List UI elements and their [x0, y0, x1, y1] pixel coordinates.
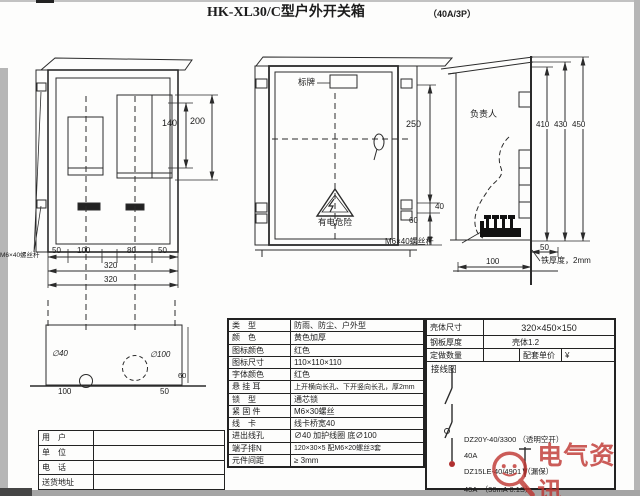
watermark-text: 电气资讯: [537, 436, 640, 496]
order-price-label: 配套单价: [520, 349, 562, 361]
person-label: 负责人: [470, 110, 497, 119]
drawing-sheet: HK-XL30/C型户外开关箱 （40A/3P）: [0, 0, 640, 496]
page-title: HK-XL30/C型户外开关箱: [207, 6, 365, 20]
spec-label: 类 型: [229, 320, 291, 331]
table-row: 壳体尺寸 320×450×150: [427, 320, 614, 336]
edge-right: [634, 0, 640, 496]
edge-bottom-left-mark: [0, 488, 32, 496]
spec-value: 110×110×110: [291, 357, 423, 368]
table-row: 进出线孔∅40 加护线圈 底∅100: [229, 430, 423, 442]
hole-large-label: ∅100: [150, 351, 170, 359]
front-bolt-callout: M6×40螺丝杆: [0, 253, 40, 260]
dim-250: 250: [406, 120, 421, 129]
top-left-mark: [36, 0, 54, 3]
spec-label: 线 卡: [229, 418, 291, 429]
table-row: 图标颜色红色: [229, 345, 423, 357]
thickness-note: 铁厚度，2mm: [541, 257, 591, 265]
table-row: 钢板厚度 壳体1.2: [427, 336, 614, 349]
dim-100: 100: [77, 247, 90, 255]
edge-top: [0, 0, 640, 2]
table-row: 颜 色黄色加厚: [229, 332, 423, 344]
watermark: 电气资讯: [486, 436, 640, 496]
customer-label: 单 位: [39, 446, 94, 460]
hole-small-label: ∅40: [52, 350, 68, 358]
plan-dim-60: 60: [178, 372, 186, 380]
door-view-drawing: [255, 57, 481, 257]
spec-table: 类 型防雨、防尘、户外型 颜 色黄色加厚 图标颜色红色 图标尺寸110×110×…: [227, 318, 425, 468]
dim-430: 430: [554, 121, 567, 129]
customer-value: [94, 446, 224, 460]
spec-value: 黄色加厚: [291, 332, 423, 343]
table-row: 端子排N120×30×5 配M6×20螺丝3套: [229, 443, 423, 455]
table-row: 线 卡线卡桥宽40: [229, 418, 423, 430]
dim-200: 200: [190, 117, 205, 126]
order-qty-value: [484, 349, 520, 361]
table-row: 字体颜色红色: [229, 369, 423, 381]
dim-50b: 50: [158, 247, 167, 255]
table-row: 悬 挂 耳上开横向长孔、下开竖向长孔，厚2mm: [229, 381, 423, 393]
shell-label: 壳体尺寸: [427, 320, 484, 335]
spec-label: 颜 色: [229, 332, 291, 343]
spec-label: 端子排N: [229, 443, 291, 454]
table-row: 用 户: [39, 431, 224, 446]
nameplate-rect: [330, 75, 357, 88]
danger-triangle-icon: [317, 189, 353, 216]
customer-table: 用 户 单 位 电 话 送货地址: [38, 430, 225, 490]
side-view-drawing: [441, 56, 590, 285]
nameplate-label: 标牌: [298, 78, 315, 87]
terminal-block: [480, 215, 521, 237]
page-title-rating: （40A/3P）: [428, 10, 476, 19]
table-row: 元件间距≥ 3mm: [229, 455, 423, 466]
customer-label: 用 户: [39, 431, 94, 445]
plan-dim-50: 50: [160, 388, 169, 396]
breaker1-rating: 40A: [464, 452, 477, 460]
shell-label: 钢板厚度: [427, 336, 484, 348]
dim-320a: 320: [104, 262, 117, 270]
dim-80: 80: [127, 247, 136, 255]
table-row: 送货地址: [39, 475, 224, 489]
table-row: 电 话: [39, 461, 224, 476]
bottom-plan-drawing: [30, 254, 206, 388]
dim-140: 140: [162, 119, 177, 128]
side-dim-50: 50: [540, 244, 549, 252]
spec-label: 图标尺寸: [229, 357, 291, 368]
spec-label: 字体颜色: [229, 369, 291, 380]
dim-60: 60: [409, 217, 418, 225]
lock-icon: [374, 134, 384, 150]
dim-50a: 50: [52, 247, 61, 255]
spec-value: 120×30×5 配M6×20螺丝3套: [291, 443, 423, 454]
spec-value: ≥ 3mm: [291, 455, 423, 466]
spec-label: 元件间距: [229, 455, 291, 466]
customer-label: 电 话: [39, 461, 94, 475]
spec-value: ∅40 加护线圈 底∅100: [291, 430, 423, 441]
shell-value: 320×450×150: [484, 320, 614, 335]
dim-450: 450: [572, 121, 585, 129]
mid-bolt-callout: M6×40螺丝杆: [385, 238, 434, 246]
wiring-title: 接线图: [431, 365, 457, 374]
table-row: 类 型防雨、防尘、户外型: [229, 320, 423, 332]
table-row: 锁 型通芯锁: [229, 394, 423, 406]
spec-label: 进出线孔: [229, 430, 291, 441]
order-qty-label: 定做数量: [427, 349, 484, 361]
dim-410: 410: [536, 121, 549, 129]
spec-value: 防雨、防尘、户外型: [291, 320, 423, 331]
customer-label: 送货地址: [39, 475, 94, 489]
spec-value: 红色: [291, 369, 423, 380]
spec-value: M6×30螺丝: [291, 406, 423, 417]
spec-value: 上开横向长孔、下开竖向长孔，厚2mm: [291, 381, 423, 392]
spec-value: 通芯锁: [291, 394, 423, 405]
side-dim-100: 100: [486, 258, 499, 266]
customer-value: [94, 461, 224, 475]
table-row: 紧 固 件M6×30螺丝: [229, 406, 423, 418]
table-row: 定做数量 配套单价 ¥: [427, 349, 614, 362]
spec-label: 紧 固 件: [229, 406, 291, 417]
table-row: 图标尺寸110×110×110: [229, 357, 423, 369]
plan-dim-100: 100: [58, 388, 71, 396]
edge-left: [0, 68, 8, 496]
table-row: 单 位: [39, 446, 224, 461]
danger-label: 有电危险: [318, 218, 352, 227]
customer-value: [94, 431, 224, 445]
spec-label: 图标颜色: [229, 345, 291, 356]
order-price-value: ¥: [562, 349, 614, 361]
front-view-drawing: [34, 58, 218, 288]
spec-label: 悬 挂 耳: [229, 381, 291, 392]
watermark-logo-icon: [486, 445, 537, 496]
customer-value: [94, 475, 224, 489]
shell-value: 壳体1.2: [484, 336, 614, 348]
dim-320b: 320: [104, 276, 117, 284]
spec-value: 线卡桥宽40: [291, 418, 423, 429]
spec-label: 锁 型: [229, 394, 291, 405]
dim-40: 40: [435, 203, 444, 211]
spec-value: 红色: [291, 345, 423, 356]
